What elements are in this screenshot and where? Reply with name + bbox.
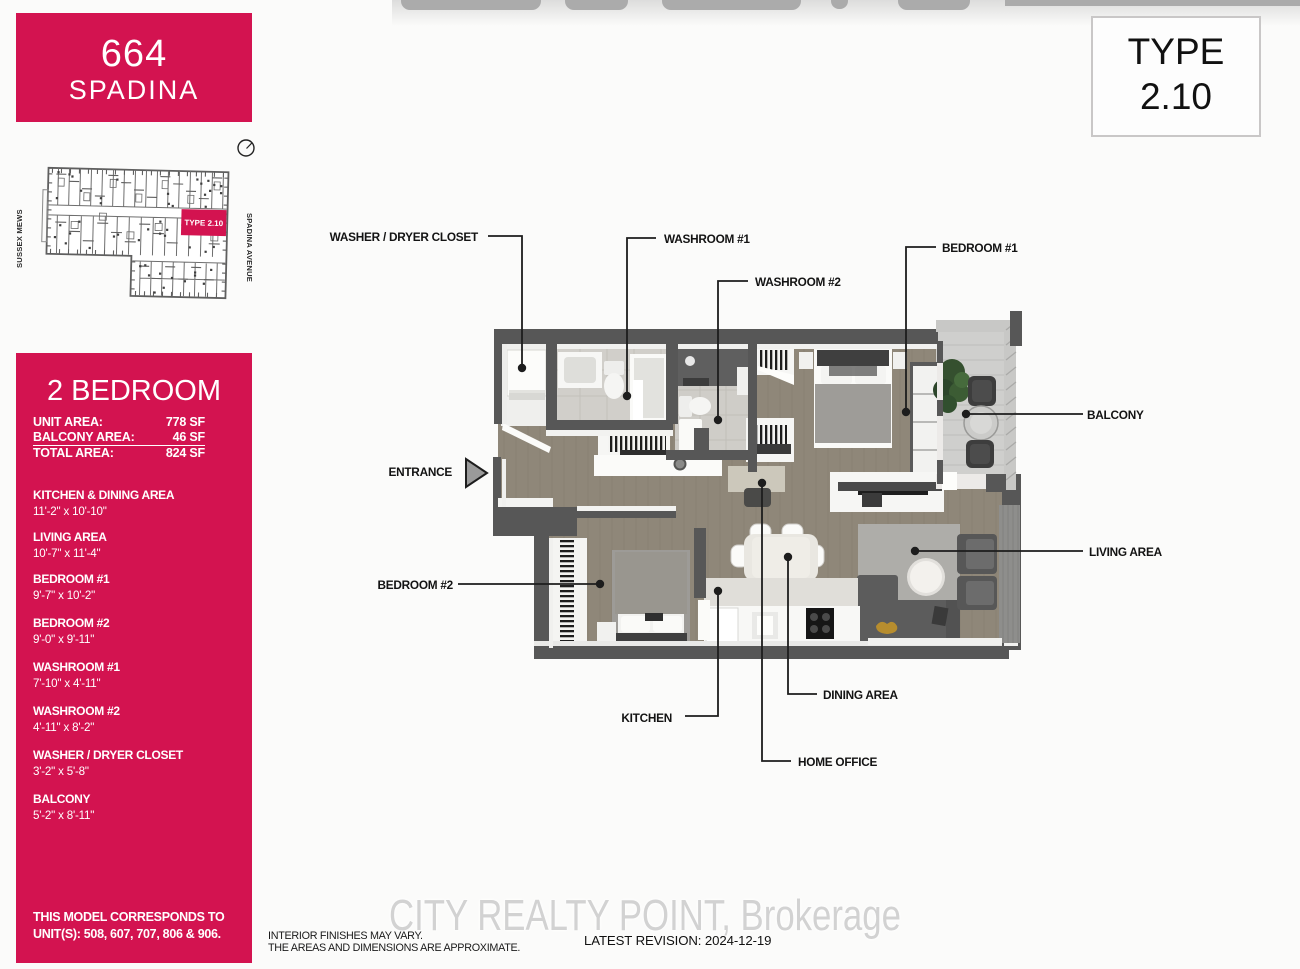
- svg-text:SUSSEX MEWS: SUSSEX MEWS: [15, 209, 24, 268]
- svg-text:SPADINA AVENUE: SPADINA AVENUE: [245, 213, 254, 282]
- svg-text:TYPE 2.10: TYPE 2.10: [184, 218, 223, 228]
